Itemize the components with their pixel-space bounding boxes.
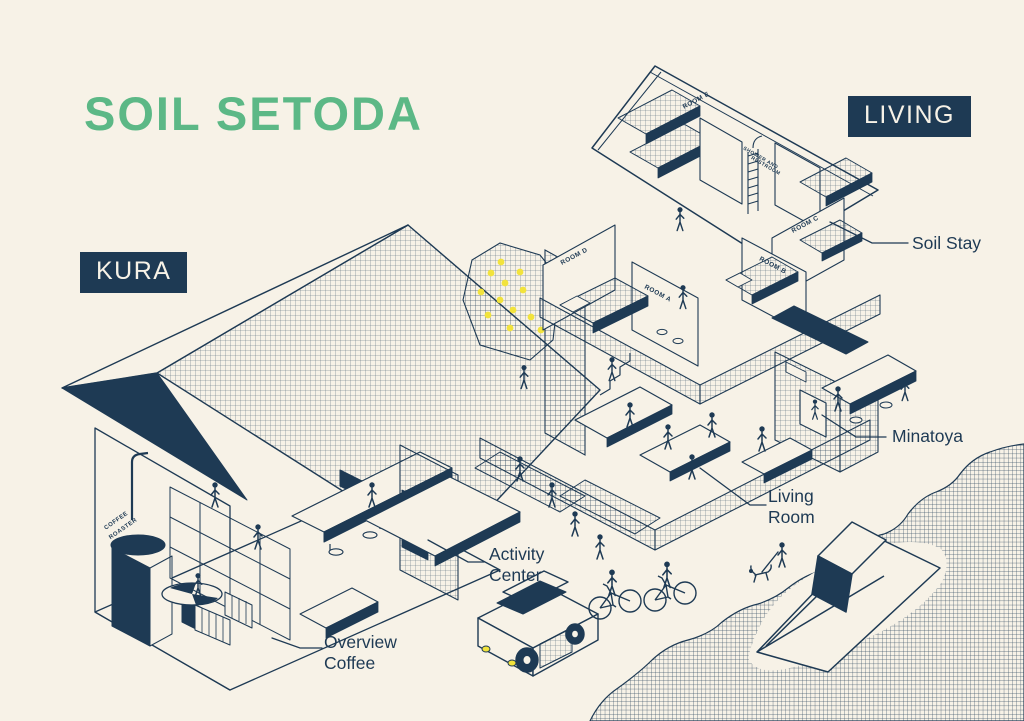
dog-walker-icon [749,542,786,582]
callout-living-room: Living Room [768,486,854,528]
page-title: SOIL SETODA [84,86,423,141]
callout-minatoya: Minatoya [892,426,963,447]
living-badge: LIVING [848,96,971,137]
car-icon [478,571,598,676]
callout-activity-center: Activity Center [489,544,589,586]
kura-badge: KURA [80,252,187,293]
bicycle-icon [589,562,696,619]
callout-soil-stay: Soil Stay [912,233,981,254]
soil-setoda-poster: COFFEE ROASTER [0,0,1024,721]
callout-overview-coffee: Overview Coffee [324,632,444,674]
